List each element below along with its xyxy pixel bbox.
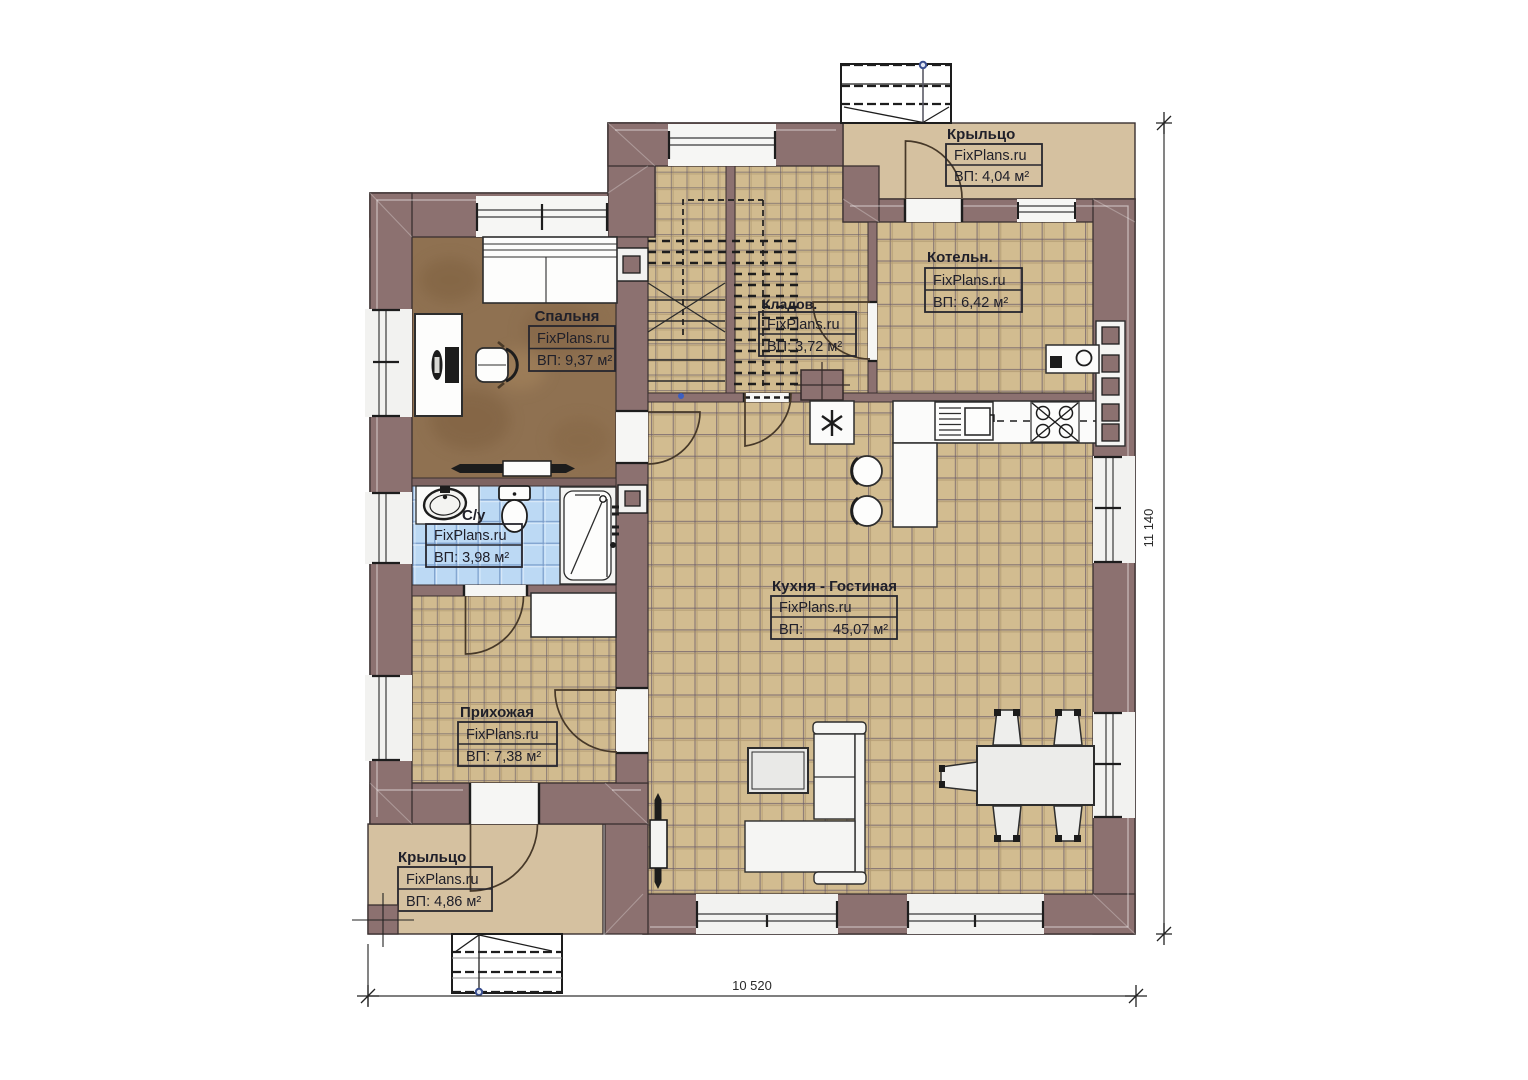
svg-text:11 140: 11 140 [1141, 509, 1156, 548]
svg-text:FixPlans.ru: FixPlans.ru [537, 331, 610, 347]
svg-text:Кухня - Гостиная: Кухня - Гостиная [772, 578, 897, 595]
svg-text:FixPlans.ru: FixPlans.ru [933, 273, 1006, 289]
svg-text:Кладов.: Кладов. [762, 296, 817, 312]
svg-text:ВП: 6,42 м²: ВП: 6,42 м² [933, 295, 1008, 311]
svg-text:С/у: С/у [462, 507, 486, 524]
svg-text:Котельн.: Котельн. [927, 249, 993, 266]
svg-text:ВП: 3,98 м²: ВП: 3,98 м² [434, 550, 509, 566]
svg-text:ВП: 4,86 м²: ВП: 4,86 м² [406, 894, 481, 910]
svg-text:Крыльцо: Крыльцо [398, 849, 466, 866]
svg-text:Крыльцо: Крыльцо [947, 126, 1015, 143]
svg-text:FixPlans.ru: FixPlans.ru [767, 317, 840, 333]
svg-text:Спальня: Спальня [535, 308, 600, 325]
svg-text:FixPlans.ru: FixPlans.ru [406, 872, 479, 888]
svg-text:Прихожая: Прихожая [460, 704, 534, 721]
svg-text:10 520: 10 520 [732, 978, 772, 993]
svg-text:ВП: 7,38 м²: ВП: 7,38 м² [466, 749, 541, 765]
svg-text:FixPlans.ru: FixPlans.ru [954, 148, 1027, 164]
svg-text:ВП: 9,37 м²: ВП: 9,37 м² [537, 353, 612, 369]
svg-text:FixPlans.ru: FixPlans.ru [466, 727, 539, 743]
svg-text:FixPlans.ru: FixPlans.ru [779, 600, 852, 616]
svg-text:ВП:: ВП: [779, 622, 803, 638]
svg-text:45,07 м²: 45,07 м² [833, 622, 888, 638]
svg-text:ВП: 3,72 м²: ВП: 3,72 м² [767, 339, 842, 355]
svg-text:ВП: 4,04 м²: ВП: 4,04 м² [954, 169, 1029, 185]
svg-text:FixPlans.ru: FixPlans.ru [434, 528, 507, 544]
